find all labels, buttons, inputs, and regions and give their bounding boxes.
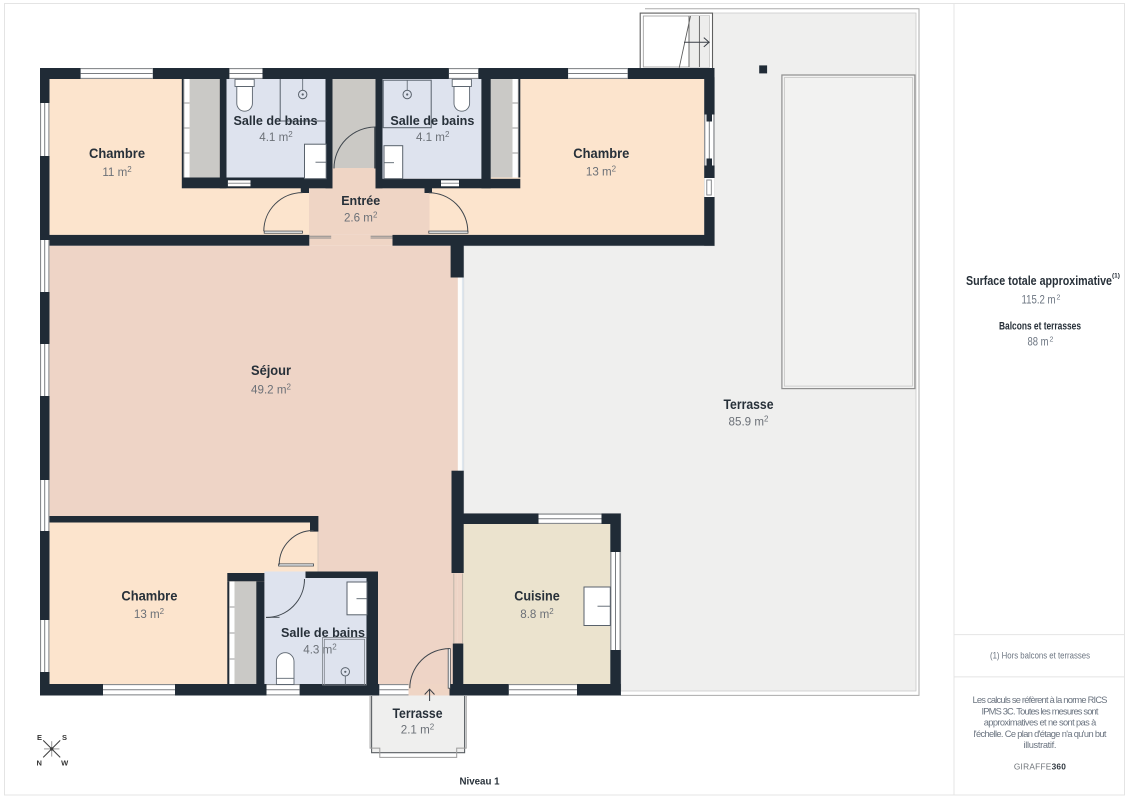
svg-text:88 m: 88 m — [1028, 337, 1049, 349]
svg-text:Séjour: Séjour — [251, 363, 292, 378]
svg-text:E: E — [37, 733, 42, 742]
svg-text:2: 2 — [1050, 337, 1054, 344]
svg-text:Les calculs se réfèrent à la n: Les calculs se réfèrent à la norme RICS — [973, 695, 1108, 705]
svg-text:Niveau 1: Niveau 1 — [460, 776, 500, 788]
svg-text:illustratif.: illustratif. — [1024, 740, 1057, 750]
svg-text:(1) Hors balcons et terrasses: (1) Hors balcons et terrasses — [990, 651, 1090, 662]
svg-text:8.8 m2: 8.8 m2 — [520, 607, 554, 621]
svg-text:2: 2 — [1057, 294, 1061, 301]
svg-text:S: S — [62, 733, 67, 742]
svg-text:l'échelle. Ce plan d'étage n'a: l'échelle. Ce plan d'étage n'a qu'un but — [974, 729, 1107, 739]
svg-text:Terrasse: Terrasse — [724, 397, 774, 412]
svg-text:Balcons et terrasses: Balcons et terrasses — [999, 320, 1081, 332]
svg-text:Salle de bains: Salle de bains — [390, 114, 474, 128]
svg-text:4.1 m2: 4.1 m2 — [259, 130, 293, 144]
svg-text:85.9 m2: 85.9 m2 — [729, 415, 769, 429]
svg-text:Chambre: Chambre — [573, 146, 629, 161]
svg-text:approximatives et ne sont pas: approximatives et ne sont pas à — [984, 718, 1097, 728]
svg-text:IPMS 3C. Toutes les mesures so: IPMS 3C. Toutes les mesures sont — [982, 706, 1099, 716]
svg-text:Salle de bains: Salle de bains — [281, 626, 365, 640]
svg-text:49.2 m2: 49.2 m2 — [251, 383, 291, 397]
svg-text:N: N — [36, 759, 41, 768]
svg-text:2.6 m2: 2.6 m2 — [344, 211, 378, 225]
svg-text:Terrasse: Terrasse — [393, 706, 443, 721]
svg-text:Salle de bains: Salle de bains — [234, 114, 318, 128]
svg-text:(1): (1) — [1112, 273, 1120, 280]
svg-text:W: W — [61, 759, 69, 768]
svg-text:4.3 m2: 4.3 m2 — [303, 642, 337, 656]
svg-text:Cuisine: Cuisine — [514, 589, 560, 604]
svg-text:Chambre: Chambre — [89, 146, 145, 161]
svg-text:4.1 m2: 4.1 m2 — [416, 130, 450, 144]
svg-text:2.1 m2: 2.1 m2 — [401, 723, 435, 737]
svg-text:115.2 m: 115.2 m — [1022, 294, 1056, 306]
svg-text:Chambre: Chambre — [121, 589, 177, 604]
svg-text:Entrée: Entrée — [341, 194, 380, 208]
svg-text:GIRAFFE360: GIRAFFE360 — [1014, 762, 1066, 772]
svg-text:Surface totale approximative: Surface totale approximative — [966, 273, 1112, 288]
